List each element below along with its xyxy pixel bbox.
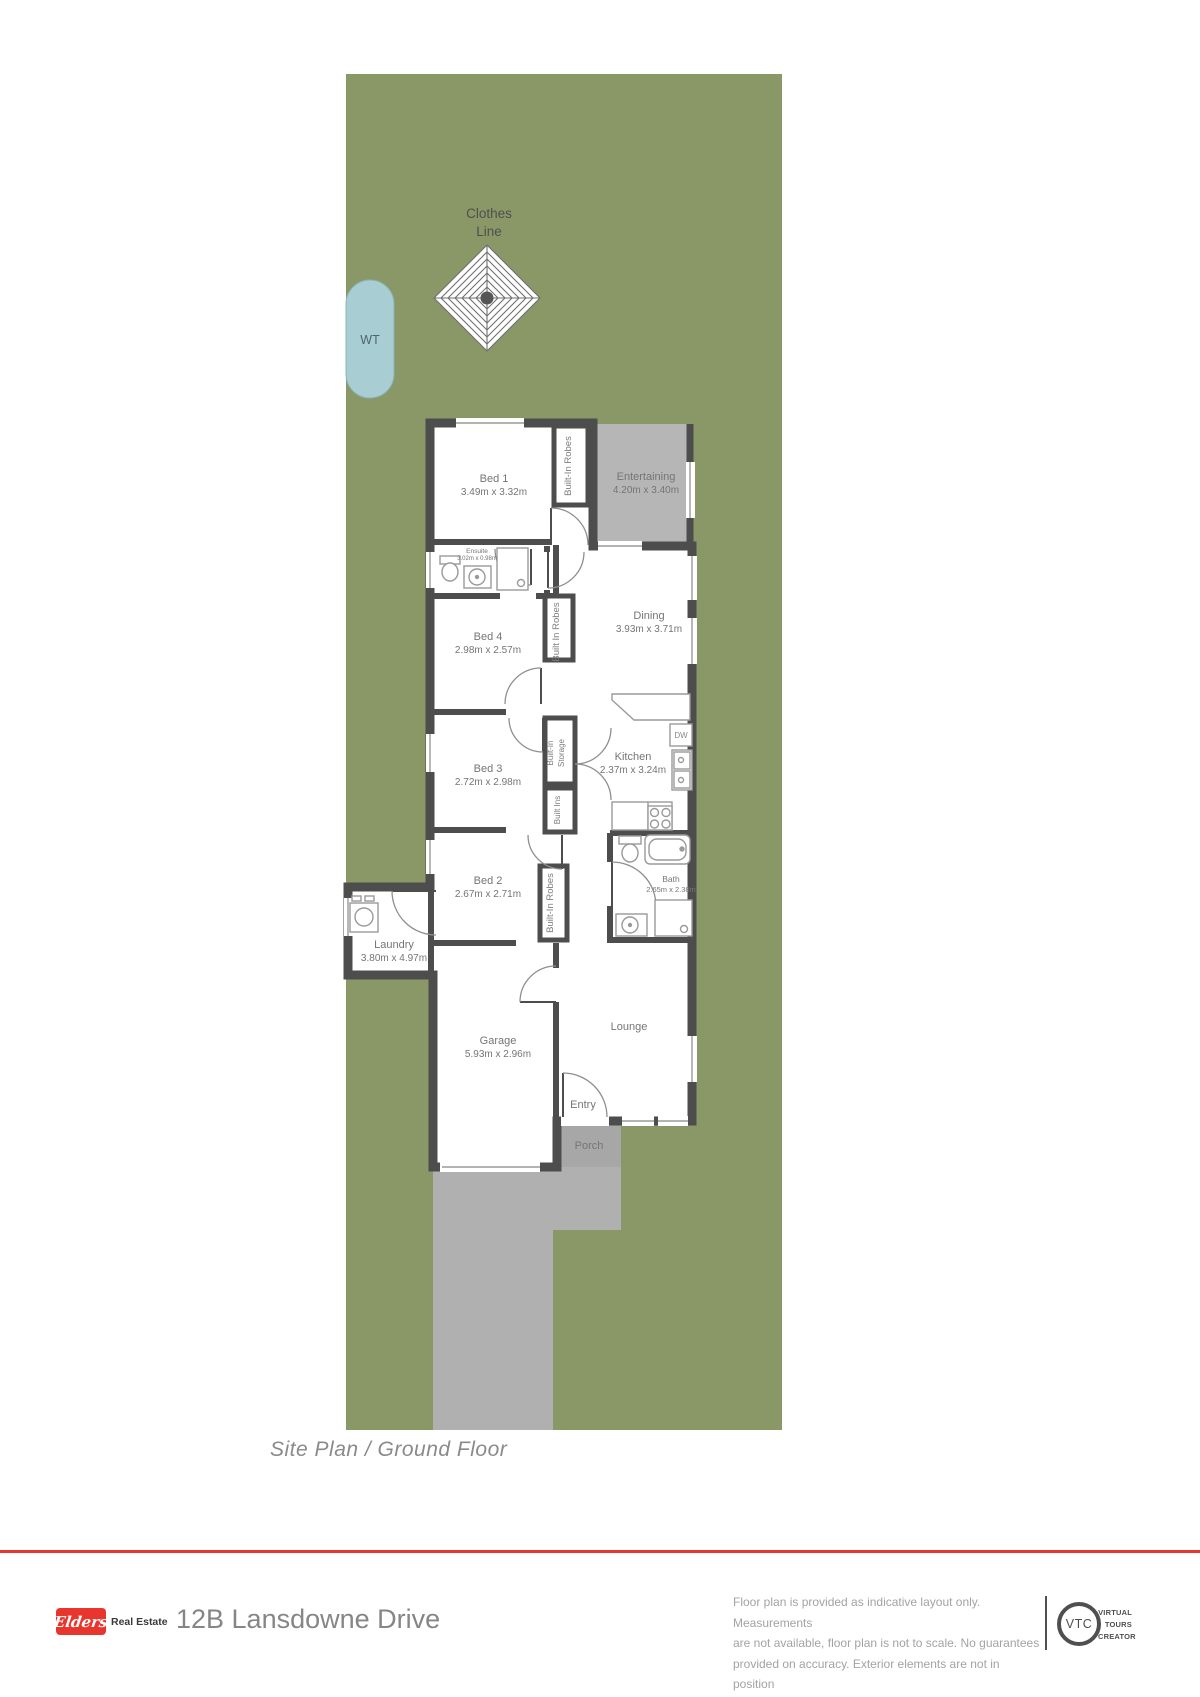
elders-logo: Elders: [56, 1608, 106, 1635]
closet-label-bed2-robes: Built-In Robes: [545, 873, 556, 933]
disclaimer-text: Floor plan is provided as indicative lay…: [733, 1592, 1043, 1695]
room-dims-bath: 2.65m x 2.38m: [646, 885, 696, 894]
room-dims-kitchen: 2.37m x 3.24m: [600, 765, 666, 776]
vtc-wordmark: VIRTUAL TOURS CREATOR: [1098, 1607, 1132, 1643]
vtc-divider: [1045, 1596, 1047, 1650]
room-dims-laundry: 3.80m x 4.97m: [361, 953, 427, 964]
ensuite-shower: [497, 548, 528, 590]
room-label-lounge: Lounge: [611, 1021, 648, 1033]
room-label-kitchen: Kitchen: [615, 751, 652, 763]
plan-caption: Site Plan / Ground Floor: [270, 1438, 507, 1462]
clothes-line-label-1: Clothes: [466, 206, 512, 221]
driveway-column: [433, 1230, 553, 1430]
room-label-laundry: Laundry: [374, 939, 414, 951]
room-label-entertaining: Entertaining: [617, 471, 676, 483]
room-label-entry: Entry: [570, 1099, 596, 1111]
vtc-word-2: TOURS: [1098, 1619, 1132, 1631]
footer-divider-line: [0, 1550, 1200, 1553]
bath-shower: [655, 900, 692, 936]
bathtub: [645, 835, 690, 864]
dishwasher-label: DW: [674, 731, 688, 740]
ensuite-vanity: [464, 566, 491, 588]
vtc-abbr: VTC: [1066, 1617, 1093, 1631]
room-dims-ensuite: 3.02m x 0.98m: [457, 556, 497, 562]
brand-suffix: Real Estate: [111, 1616, 168, 1628]
closet-label-built-ins: Built Ins: [553, 796, 562, 824]
room-dims-bed2: 2.67m x 2.71m: [455, 889, 521, 900]
disclaimer-line-1: Floor plan is provided as indicative lay…: [733, 1592, 1043, 1633]
closet-label-bed1-robes: Built-In Robes: [563, 436, 574, 496]
vtc-logo-icon: VTC: [1057, 1602, 1101, 1646]
disclaimer-line-3: provided on accuracy. Exterior elements …: [733, 1654, 1043, 1695]
room-label-bed4: Bed 4: [474, 631, 503, 643]
room-dims-bed3: 2.72m x 2.98m: [455, 777, 521, 788]
water-tank-label: WT: [360, 333, 380, 347]
floor-plan-page: Clothes Line WT: [0, 0, 1200, 1697]
room-dims-bed1: 3.49m x 3.32m: [461, 487, 527, 498]
cooktop: [648, 806, 672, 830]
room-label-bed3: Bed 3: [474, 763, 503, 775]
room-label-ensuite: Ensuite: [466, 548, 488, 555]
room-label-garage: Garage: [480, 1035, 517, 1047]
elders-logo-text: Elders: [53, 1613, 109, 1631]
room-label-bath: Bath: [662, 874, 680, 884]
disclaimer-line-2: are not available, floor plan is not to …: [733, 1633, 1043, 1654]
room-label-bed2: Bed 2: [474, 875, 503, 887]
room-dims-garage: 5.93m x 2.96m: [465, 1049, 531, 1060]
closet-label-storage-2: Storage: [557, 738, 566, 767]
room-label-bed1: Bed 1: [480, 473, 509, 485]
property-address: 12B Lansdowne Drive: [176, 1604, 440, 1635]
footer: Elders Real Estate 12B Lansdowne Drive F…: [0, 1560, 1200, 1697]
site-plan-svg: Clothes Line WT: [0, 0, 1200, 1480]
vtc-word-1: VIRTUAL: [1098, 1607, 1132, 1619]
closet-label-bed4-robes: Built In Robes: [551, 602, 562, 661]
driveway-upper: [433, 1167, 621, 1230]
clothes-line-label-2: Line: [476, 224, 502, 239]
oven-stack: [672, 750, 692, 790]
room-label-porch: Porch: [575, 1140, 604, 1152]
room-dims-dining: 3.93m x 3.71m: [616, 624, 682, 635]
room-dims-bed4: 2.98m x 2.57m: [455, 645, 521, 656]
vtc-word-3: CREATOR: [1098, 1631, 1132, 1643]
room-dims-entertaining: 4.20m x 3.40m: [613, 485, 679, 496]
closet-label-storage-1: Built-In: [546, 741, 555, 766]
bath-vanity: [616, 914, 647, 936]
room-label-dining: Dining: [633, 610, 664, 622]
